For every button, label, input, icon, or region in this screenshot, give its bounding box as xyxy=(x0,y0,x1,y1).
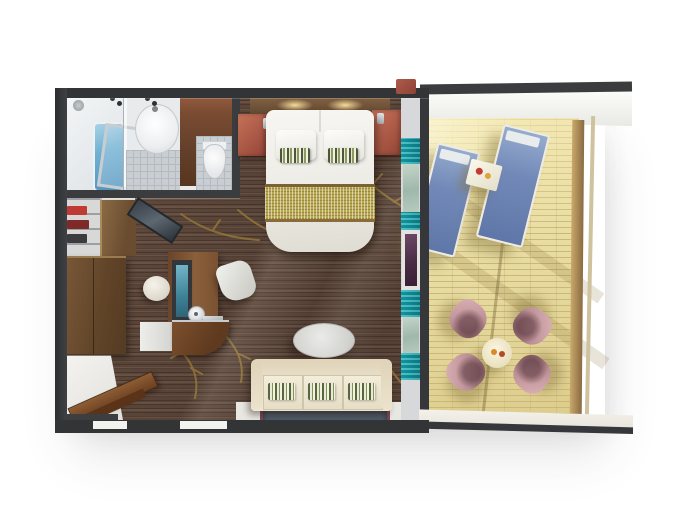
ceiling-light-dot xyxy=(117,101,122,106)
wall-cabinet xyxy=(396,79,416,94)
clothes-item xyxy=(67,206,87,215)
sofa-striped-pillow xyxy=(308,383,335,400)
balcony-divider-wall xyxy=(401,88,429,433)
teal-curtain xyxy=(401,212,420,230)
wall-opening xyxy=(93,421,127,429)
divider-dark-wall xyxy=(420,88,429,433)
wall-left xyxy=(55,88,67,433)
pendant-lamp-right xyxy=(377,113,384,124)
clothes-item xyxy=(67,220,89,229)
teal-curtain xyxy=(401,353,420,380)
bathroom xyxy=(63,92,240,198)
glass-panel xyxy=(403,317,419,353)
striped-cushion xyxy=(328,148,358,163)
duvet-crease xyxy=(319,110,321,132)
drink-glass xyxy=(484,172,491,179)
drink-glass xyxy=(475,167,483,175)
faucet xyxy=(152,106,158,112)
ottoman xyxy=(143,276,170,301)
shower-head xyxy=(73,100,84,111)
lounger-headrest xyxy=(439,148,471,165)
wall-opening xyxy=(180,421,227,429)
tv-screen xyxy=(176,265,188,317)
sofa-arm xyxy=(381,363,392,409)
coffee-table xyxy=(293,323,355,358)
wardrobe xyxy=(60,256,126,354)
bathroom-floor-tiles xyxy=(126,150,180,190)
counter-cabinet xyxy=(140,322,172,351)
wall-top xyxy=(55,88,429,98)
bathroom-wall-bottom xyxy=(63,190,240,198)
drink-glass xyxy=(499,351,505,357)
sofa-striped-pillow xyxy=(348,383,375,400)
clothes-item xyxy=(67,234,87,243)
sofa-arm xyxy=(251,363,262,409)
bed-runner xyxy=(265,184,375,222)
window-glass-purple xyxy=(405,234,417,286)
lounger-headrest xyxy=(505,130,540,148)
deck-edge-band xyxy=(570,120,585,414)
floorplan-render xyxy=(0,0,680,510)
closet-shelves xyxy=(63,198,102,258)
sofa-striped-pillow xyxy=(268,383,295,400)
sofa xyxy=(251,359,392,411)
ceiling-light-dot xyxy=(152,101,157,106)
bed xyxy=(266,110,374,252)
drink-glass xyxy=(491,349,497,355)
striped-cushion xyxy=(280,148,310,163)
glass-panel xyxy=(403,164,419,212)
washbasin xyxy=(135,104,179,154)
balcony-table xyxy=(482,338,512,368)
teal-curtain xyxy=(401,290,420,317)
teal-curtain xyxy=(401,138,420,164)
